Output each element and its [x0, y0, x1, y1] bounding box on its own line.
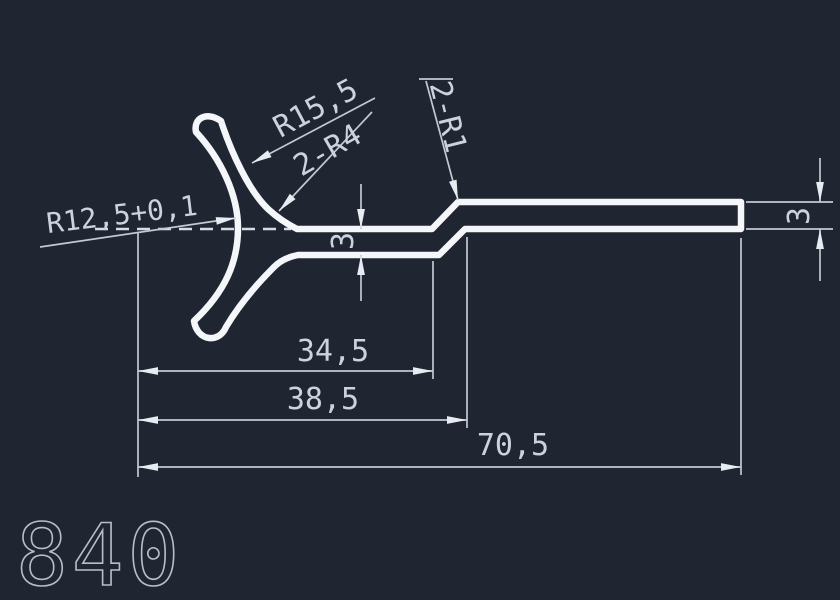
label-thickness-left: 3	[329, 232, 359, 250]
label-70-5: 70,5	[477, 431, 549, 461]
label-34-5: 34,5	[297, 337, 369, 367]
label-thickness-right: 3	[785, 207, 815, 225]
cad-drawing-canvas[interactable]: 840 R15,5 2-R4 2-R1 R12,5+0,1 3 3 34,5 3…	[0, 0, 840, 600]
label-38-5: 38,5	[287, 385, 359, 415]
drawing-linework: 840	[0, 0, 840, 600]
part-number: 840	[16, 506, 183, 600]
